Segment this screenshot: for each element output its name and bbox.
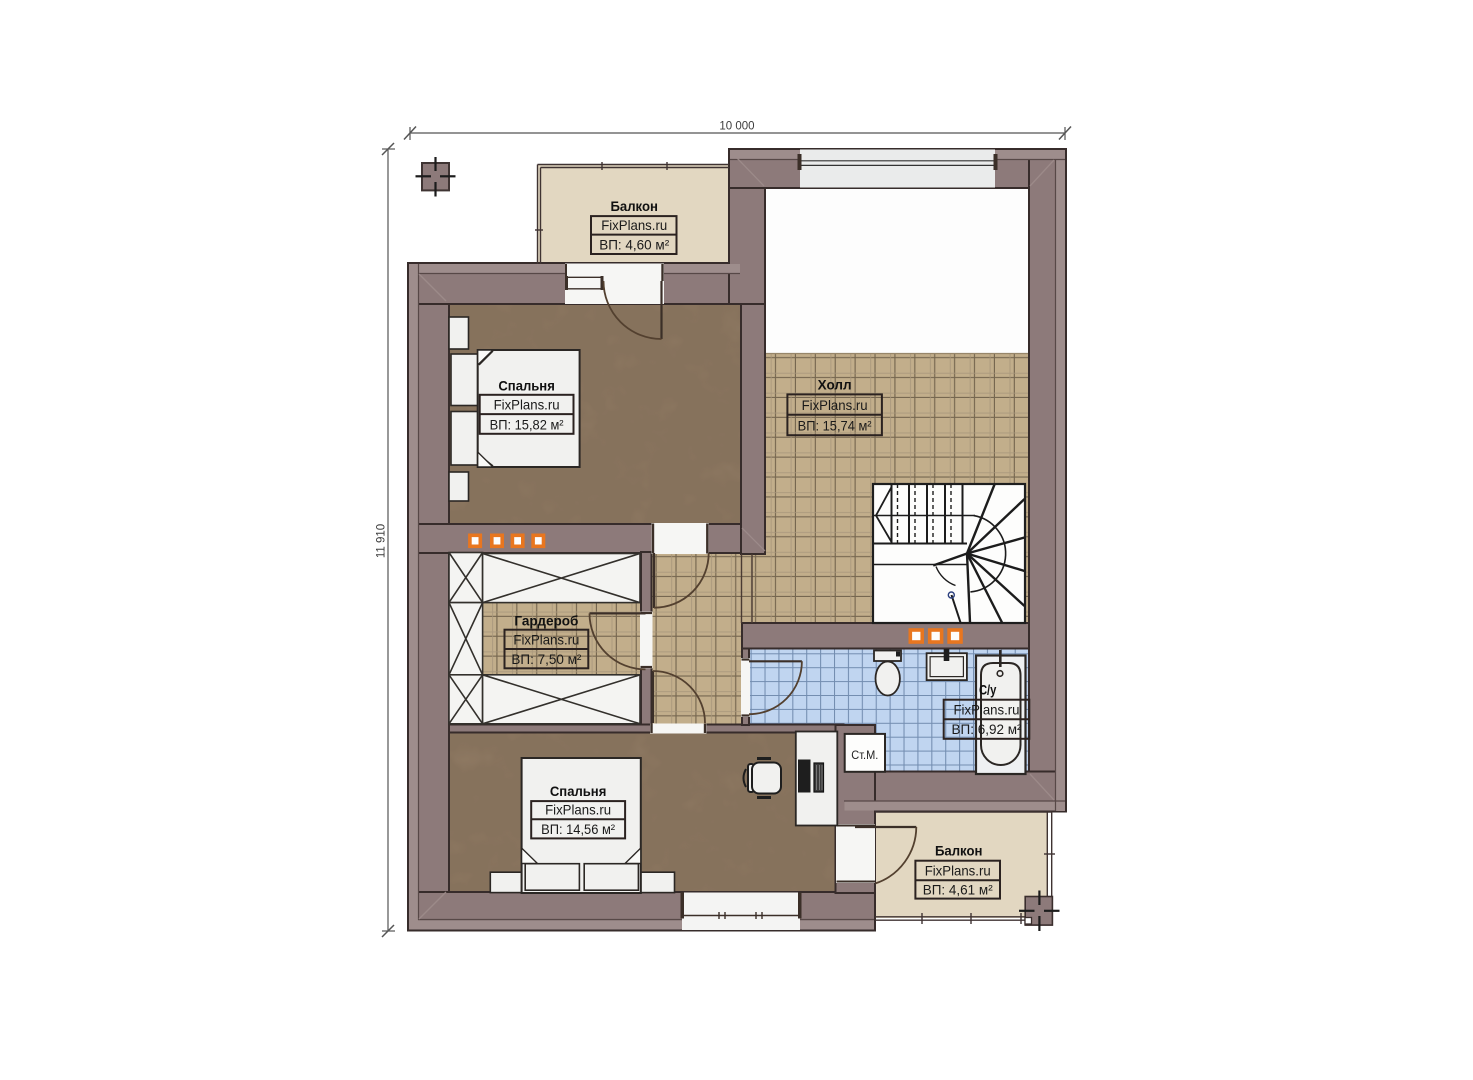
- svg-text:Балкон: Балкон: [610, 198, 658, 214]
- svg-text:Гардероб: Гардероб: [514, 613, 578, 629]
- svg-text:ВП: 4,61 м²: ВП: 4,61 м²: [923, 882, 993, 898]
- svg-text:Холл: Холл: [818, 377, 852, 393]
- svg-text:FixPlans.ru: FixPlans.ru: [601, 217, 667, 233]
- svg-text:С/у: С/у: [979, 682, 997, 698]
- svg-text:FixPlans.ru: FixPlans.ru: [513, 632, 579, 648]
- svg-text:Спальня: Спальня: [550, 783, 607, 799]
- svg-text:FixPlans.ru: FixPlans.ru: [925, 863, 991, 879]
- svg-text:ВП: 4,60 м²: ВП: 4,60 м²: [599, 237, 669, 253]
- svg-text:Ст.М.: Ст.М.: [851, 748, 878, 762]
- svg-text:10 000: 10 000: [719, 121, 754, 133]
- svg-text:11 910: 11 910: [376, 524, 388, 558]
- svg-text:FixPlans.ru: FixPlans.ru: [494, 397, 560, 413]
- svg-text:FixPlans.ru: FixPlans.ru: [545, 802, 611, 818]
- svg-text:Балкон: Балкон: [935, 843, 983, 859]
- svg-text:ВП: 6,92 м²: ВП: 6,92 м²: [952, 721, 1022, 737]
- svg-text:ВП: 15,74 м²: ВП: 15,74 м²: [798, 418, 872, 434]
- svg-text:ВП: 14,56 м²: ВП: 14,56 м²: [541, 821, 615, 837]
- svg-text:FixPlans.ru: FixPlans.ru: [802, 397, 868, 413]
- svg-text:ВП: 7,50 м²: ВП: 7,50 м²: [511, 651, 581, 667]
- svg-text:FixPlans.ru: FixPlans.ru: [954, 702, 1020, 718]
- svg-text:ВП: 15,82 м²: ВП: 15,82 м²: [490, 417, 564, 433]
- svg-text:Спальня: Спальня: [498, 378, 555, 394]
